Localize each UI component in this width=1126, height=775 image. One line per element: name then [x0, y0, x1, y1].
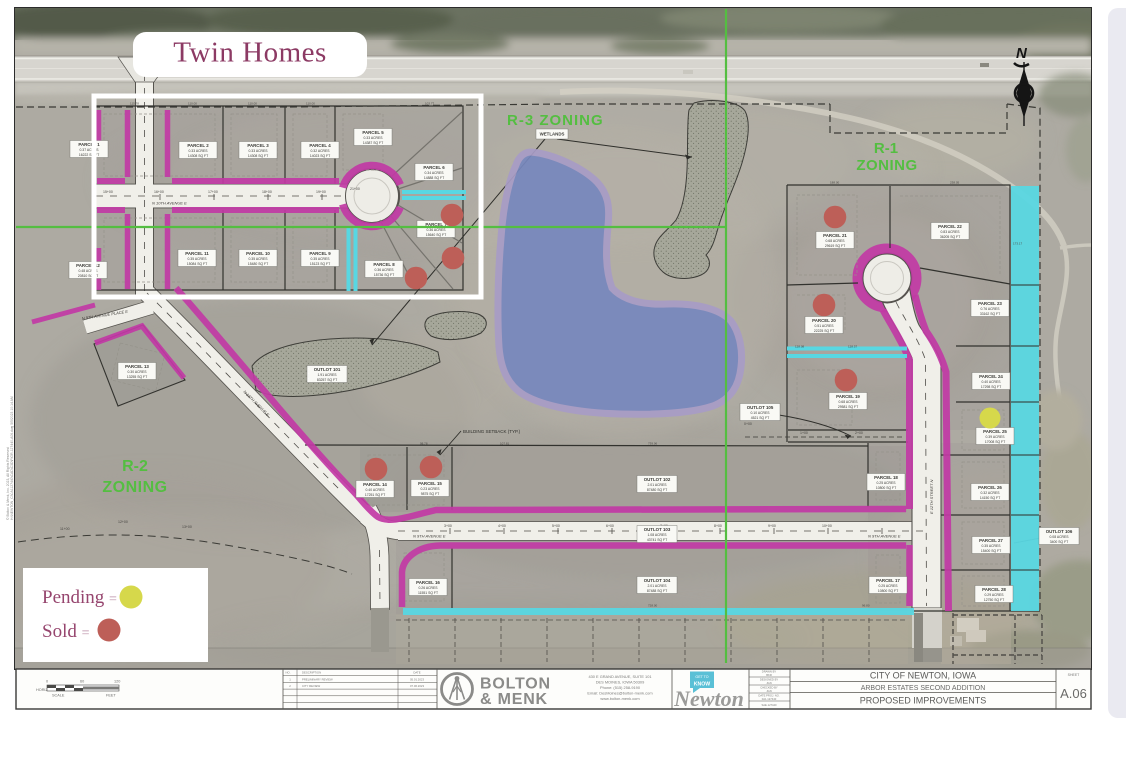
svg-text:0: 0 — [46, 680, 48, 684]
svg-text:ARBOR ESTATES SECOND ADDITION: ARBOR ESTATES SECOND ADDITION — [861, 685, 986, 692]
svg-text:N 9TH AVENUE E: N 9TH AVENUE E — [868, 534, 901, 539]
svg-text:PARCEL 24: PARCEL 24 — [979, 374, 1003, 379]
svg-text:BOLTON: BOLTON — [480, 676, 551, 693]
svg-text:0.10 ACRES: 0.10 ACRES — [750, 411, 770, 415]
svg-text:PARCEL 6: PARCEL 6 — [423, 165, 445, 170]
svg-text:05.01.2023: 05.01.2023 — [410, 677, 424, 681]
svg-text:PROPOSED IMPROVEMENTS: PROPOSED IMPROVEMENTS — [860, 696, 987, 706]
svg-text:15+00: 15+00 — [103, 190, 113, 194]
svg-text:0.40 ACRES: 0.40 ACRES — [365, 488, 385, 492]
svg-text:430 E GRAND AVENUE, SUITE 101: 430 E GRAND AVENUE, SUITE 101 — [588, 674, 651, 679]
svg-text:PARCEL 19: PARCEL 19 — [836, 394, 860, 399]
svg-text:1+00: 1+00 — [800, 431, 808, 435]
svg-text:PARCEL 11: PARCEL 11 — [185, 251, 209, 256]
svg-text:ZONING: ZONING — [856, 157, 917, 174]
svg-text:0.68 ACRES: 0.68 ACRES — [825, 239, 845, 243]
svg-text:H:\NEWTON_CI\0A1127440\CAD\C3D: H:\NEWTON_CI\0A1127440\CAD\C3D\FIGR-1274… — [10, 396, 14, 520]
svg-text:0.32 ACRES: 0.32 ACRES — [310, 149, 330, 153]
svg-text:98.78: 98.78 — [420, 442, 428, 446]
svg-text:87488 SQ FT: 87488 SQ FT — [647, 589, 667, 593]
svg-text:29619 SQ FT: 29619 SQ FT — [825, 244, 845, 248]
svg-text:15123 SQ FT: 15123 SQ FT — [310, 262, 330, 266]
svg-text:0.36 ACRES: 0.36 ACRES — [426, 228, 446, 232]
svg-text:10800 SQ FT: 10800 SQ FT — [876, 486, 896, 490]
svg-text:BUILDING SETBACK (TYP.): BUILDING SETBACK (TYP.) — [463, 429, 521, 434]
svg-text:0.33 ACRES: 0.33 ACRES — [363, 136, 383, 140]
svg-text:188.00: 188.00 — [830, 181, 840, 185]
svg-text:PRELIMINARY REVIEW: PRELIMINARY REVIEW — [302, 677, 333, 681]
svg-text:13255 SQ FT: 13255 SQ FT — [127, 375, 147, 379]
svg-text:107.81: 107.81 — [500, 442, 510, 446]
svg-text:JGN: JGN — [766, 689, 771, 693]
svg-text:0.83 ACRES: 0.83 ACRES — [940, 230, 960, 234]
svg-text:GET TO: GET TO — [695, 675, 708, 679]
svg-text:0.35 ACRES: 0.35 ACRES — [248, 257, 268, 261]
svg-text:14387 SQ FT: 14387 SQ FT — [363, 141, 383, 145]
svg-text:60: 60 — [80, 680, 84, 684]
svg-text:DATE: DATE — [413, 671, 420, 675]
svg-text:0.26 ACRES: 0.26 ACRES — [418, 586, 438, 590]
svg-text:PARCEL 13: PARCEL 13 — [125, 364, 149, 369]
svg-text:0.30 ACRES: 0.30 ACRES — [127, 370, 147, 374]
svg-text:Phone: (515) 258-9190: Phone: (515) 258-9190 — [600, 685, 641, 690]
svg-text:0.29 ACRES: 0.29 ACRES — [984, 593, 1004, 597]
svg-text:36205 SQ FT: 36205 SQ FT — [940, 235, 960, 239]
svg-text:OUTLOT 104: OUTLOT 104 — [644, 578, 671, 583]
svg-text:PARCEL 26: PARCEL 26 — [978, 485, 1002, 490]
svg-text:PARCEL 21: PARCEL 21 — [823, 233, 847, 238]
svg-text:PARCEL 16: PARCEL 16 — [416, 580, 440, 585]
svg-text:128.57: 128.57 — [848, 345, 858, 349]
svg-text:87480 SQ FT: 87480 SQ FT — [647, 488, 667, 492]
svg-text:ZONING: ZONING — [102, 479, 167, 496]
svg-text:17251 SQ FT: 17251 SQ FT — [365, 493, 385, 497]
svg-text:0.40 ACRES: 0.40 ACRES — [981, 380, 1001, 384]
svg-text:0A1.127440: 0A1.127440 — [762, 697, 777, 701]
svg-text:15736 SQ FT: 15736 SQ FT — [374, 273, 394, 277]
svg-text:PARCEL 15: PARCEL 15 — [418, 481, 442, 486]
svg-text:8+00: 8+00 — [714, 524, 722, 528]
svg-text:A.06: A.06 — [1060, 686, 1087, 701]
svg-text:115.78: 115.78 — [130, 102, 139, 106]
svg-text:22225 SQ FT: 22225 SQ FT — [814, 329, 834, 333]
svg-text:15480 SQ FT: 15480 SQ FT — [248, 262, 268, 266]
svg-text:110.00: 110.00 — [188, 102, 197, 106]
svg-text:1.08 ACRES: 1.08 ACRES — [647, 533, 667, 537]
svg-text:21+00: 21+00 — [350, 187, 360, 191]
svg-text:0.25 ACRES: 0.25 ACRES — [878, 584, 898, 588]
svg-text:N 10TH AVENUE E: N 10TH AVENUE E — [152, 201, 187, 206]
svg-text:11551 SQ FT: 11551 SQ FT — [418, 591, 438, 595]
svg-text:17298 SQ FT: 17298 SQ FT — [981, 385, 1001, 389]
svg-text:18+00: 18+00 — [262, 190, 272, 194]
svg-text:11+00: 11+00 — [60, 527, 70, 531]
svg-text:PARCEL 27: PARCEL 27 — [979, 538, 1003, 543]
svg-text:CITY REVIEW: CITY REVIEW — [302, 684, 320, 688]
svg-text:0.68 ACRES: 0.68 ACRES — [838, 400, 858, 404]
svg-text:PARCEL 28: PARCEL 28 — [982, 587, 1006, 592]
svg-text:PARCEL 23: PARCEL 23 — [978, 301, 1002, 306]
svg-text:14023 SQ FT: 14023 SQ FT — [310, 154, 330, 158]
svg-text:9+00: 9+00 — [768, 524, 776, 528]
svg-text:0+00: 0+00 — [744, 422, 752, 426]
svg-text:0.35 ACRES: 0.35 ACRES — [187, 257, 207, 261]
svg-text:29581 SQ FT: 29581 SQ FT — [838, 405, 858, 409]
svg-text:17008 SQ FT: 17008 SQ FT — [985, 440, 1005, 444]
svg-text:0.25 ACRES: 0.25 ACRES — [876, 481, 896, 485]
svg-text:0.32 ACRES: 0.32 ACRES — [980, 491, 1000, 495]
svg-text:120: 120 — [114, 680, 120, 684]
svg-text:SHEET: SHEET — [1068, 673, 1081, 677]
svg-text:0.35 ACRES: 0.35 ACRES — [310, 257, 330, 261]
svg-text:12750 SQ FT: 12750 SQ FT — [984, 598, 1004, 602]
svg-text:0.36 ACRES: 0.36 ACRES — [374, 268, 394, 272]
svg-text:14150 SQ FT: 14150 SQ FT — [980, 496, 1000, 500]
svg-text:PARCEL 8: PARCEL 8 — [373, 262, 395, 267]
svg-text:5+00: 5+00 — [552, 524, 560, 528]
svg-text:Pending =: Pending = — [42, 587, 117, 608]
svg-text:2.01 ACRES: 2.01 ACRES — [647, 584, 667, 588]
svg-text:Newton: Newton — [673, 686, 744, 711]
svg-text:PARCEL 12: PARCEL 12 — [76, 263, 100, 268]
svg-text:33162 SQ FT: 33162 SQ FT — [980, 312, 1000, 316]
svg-text:4521 SQ FT: 4521 SQ FT — [751, 416, 769, 420]
svg-text:DESIGNED BY: DESIGNED BY — [760, 678, 779, 682]
svg-text:N: N — [1016, 45, 1028, 62]
svg-text:14308 SQ FT: 14308 SQ FT — [248, 154, 268, 158]
svg-text:14308 SQ FT: 14308 SQ FT — [188, 154, 208, 158]
svg-text:DATE PROJ. NO.: DATE PROJ. NO. — [758, 694, 779, 698]
svg-text:0.08 ACRES: 0.08 ACRES — [1049, 535, 1069, 539]
svg-text:OUTLOT 106: OUTLOT 106 — [1046, 529, 1073, 534]
svg-text:OUTLOT 102: OUTLOT 102 — [644, 477, 671, 482]
svg-text:CITY OF NEWTON, IOWA: CITY OF NEWTON, IOWA — [870, 671, 976, 681]
svg-text:PARCEL 4: PARCEL 4 — [309, 143, 331, 148]
svg-text:PARCEL 10: PARCEL 10 — [246, 251, 270, 256]
svg-text:4+00: 4+00 — [498, 524, 506, 528]
svg-text:1.91 ACRES: 1.91 ACRES — [317, 373, 337, 377]
svg-text:2+00: 2+00 — [855, 431, 863, 435]
svg-text:PARCEL 2: PARCEL 2 — [187, 143, 209, 148]
svg-text:OUTLOT 101: OUTLOT 101 — [314, 367, 341, 372]
svg-text:PARCEL 20: PARCEL 20 — [812, 318, 836, 323]
svg-text:0.35 ACRES: 0.35 ACRES — [981, 544, 1001, 548]
svg-text:10800 SQ FT: 10800 SQ FT — [878, 589, 898, 593]
svg-text:07.06.2023: 07.06.2023 — [410, 684, 424, 688]
svg-text:110.00: 110.00 — [306, 102, 315, 106]
svg-text:CHECKED BY: CHECKED BY — [760, 686, 778, 690]
svg-text:110.00: 110.00 — [248, 102, 257, 106]
svg-text:DES MOINES, IOWA 50309: DES MOINES, IOWA 50309 — [596, 680, 645, 685]
svg-text:739.06: 739.06 — [648, 442, 658, 446]
svg-text:0.33 ACRES: 0.33 ACRES — [188, 149, 208, 153]
svg-text:728.00: 728.00 — [648, 604, 658, 608]
svg-text:17+00: 17+00 — [208, 190, 218, 194]
svg-text:13+00: 13+00 — [182, 525, 192, 529]
svg-text:9875 SQ FT: 9875 SQ FT — [421, 492, 439, 496]
svg-text:OUTLOT 103: OUTLOT 103 — [644, 527, 671, 532]
svg-text:PARCEL 9: PARCEL 9 — [309, 251, 331, 256]
svg-text:PARCEL 1: PARCEL 1 — [78, 142, 100, 147]
svg-text:83257 SQ FT: 83257 SQ FT — [317, 378, 337, 382]
svg-text:15400 SQ FT: 15400 SQ FT — [981, 549, 1001, 553]
svg-text:www.bolton-menk.com: www.bolton-menk.com — [600, 696, 639, 701]
svg-text:BKR: BKR — [766, 673, 772, 677]
svg-text:PARCEL 14: PARCEL 14 — [363, 482, 387, 487]
svg-text:PARCEL 18: PARCEL 18 — [874, 475, 898, 480]
svg-text:15084 SQ FT: 15084 SQ FT — [187, 262, 207, 266]
svg-text:0.23 ACRES: 0.23 ACRES — [420, 487, 440, 491]
svg-text:238.05: 238.05 — [950, 181, 960, 185]
svg-text:N 9TH AVENUE E: N 9TH AVENUE E — [413, 534, 446, 539]
svg-text:3400 SQ FT: 3400 SQ FT — [1050, 540, 1068, 544]
svg-text:NO.: NO. — [286, 671, 291, 675]
svg-text:0.51 ACRES: 0.51 ACRES — [814, 324, 834, 328]
svg-text:PARCEL 17: PARCEL 17 — [876, 578, 900, 583]
svg-text:SCALE: SCALE — [52, 694, 65, 698]
svg-text:19+00: 19+00 — [316, 190, 326, 194]
svg-text:14888 SQ FT: 14888 SQ FT — [424, 176, 444, 180]
svg-text:12+00: 12+00 — [118, 520, 128, 524]
svg-text:SAE.127440: SAE.127440 — [761, 703, 777, 707]
svg-text:0.34 ACRES: 0.34 ACRES — [424, 171, 444, 175]
svg-text:Twin Homes: Twin Homes — [173, 37, 327, 69]
svg-text:16+00: 16+00 — [154, 190, 164, 194]
svg-text:PARCEL 25: PARCEL 25 — [983, 429, 1007, 434]
svg-text:0.33 ACRES: 0.33 ACRES — [248, 149, 268, 153]
svg-text:R-2: R-2 — [122, 458, 148, 475]
svg-text:6+00: 6+00 — [606, 524, 614, 528]
svg-text:DRAWN BY: DRAWN BY — [762, 670, 777, 674]
svg-text:0.39 ACRES: 0.39 ACRES — [985, 435, 1005, 439]
svg-text:173.17: 173.17 — [1013, 242, 1023, 246]
svg-text:0.76 ACRES: 0.76 ACRES — [980, 307, 1000, 311]
svg-text:128.08: 128.08 — [795, 345, 805, 349]
svg-text:JGN: JGN — [766, 681, 771, 685]
svg-text:10+00: 10+00 — [822, 524, 832, 528]
svg-text:E 12TH STREET N: E 12TH STREET N — [929, 479, 934, 514]
svg-text:3+00: 3+00 — [444, 524, 452, 528]
svg-text:PARCEL 5: PARCEL 5 — [362, 130, 384, 135]
svg-text:OUTLOT 105: OUTLOT 105 — [747, 405, 774, 410]
svg-text:96.80: 96.80 — [862, 604, 870, 608]
svg-text:FEET: FEET — [106, 694, 116, 698]
svg-text:WETLANDS: WETLANDS — [540, 132, 565, 137]
svg-text:Email: DesMoines@bolton-menk.c: Email: DesMoines@bolton-menk.com — [587, 691, 652, 696]
svg-text:103.77: 103.77 — [425, 102, 435, 106]
svg-text:R-1: R-1 — [874, 140, 898, 157]
svg-text:R-3 ZONING: R-3 ZONING — [507, 112, 604, 129]
svg-text:PARCEL 22: PARCEL 22 — [938, 224, 962, 229]
svg-text:43741 SQ FT: 43741 SQ FT — [647, 538, 667, 542]
svg-text:DESCRIPTION: DESCRIPTION — [302, 671, 321, 675]
svg-text:2.01 ACRES: 2.01 ACRES — [647, 483, 667, 487]
svg-text:PARCEL 3: PARCEL 3 — [247, 143, 269, 148]
svg-text:15640 SQ FT: 15640 SQ FT — [426, 233, 446, 237]
svg-text:& MENK: & MENK — [480, 691, 548, 708]
